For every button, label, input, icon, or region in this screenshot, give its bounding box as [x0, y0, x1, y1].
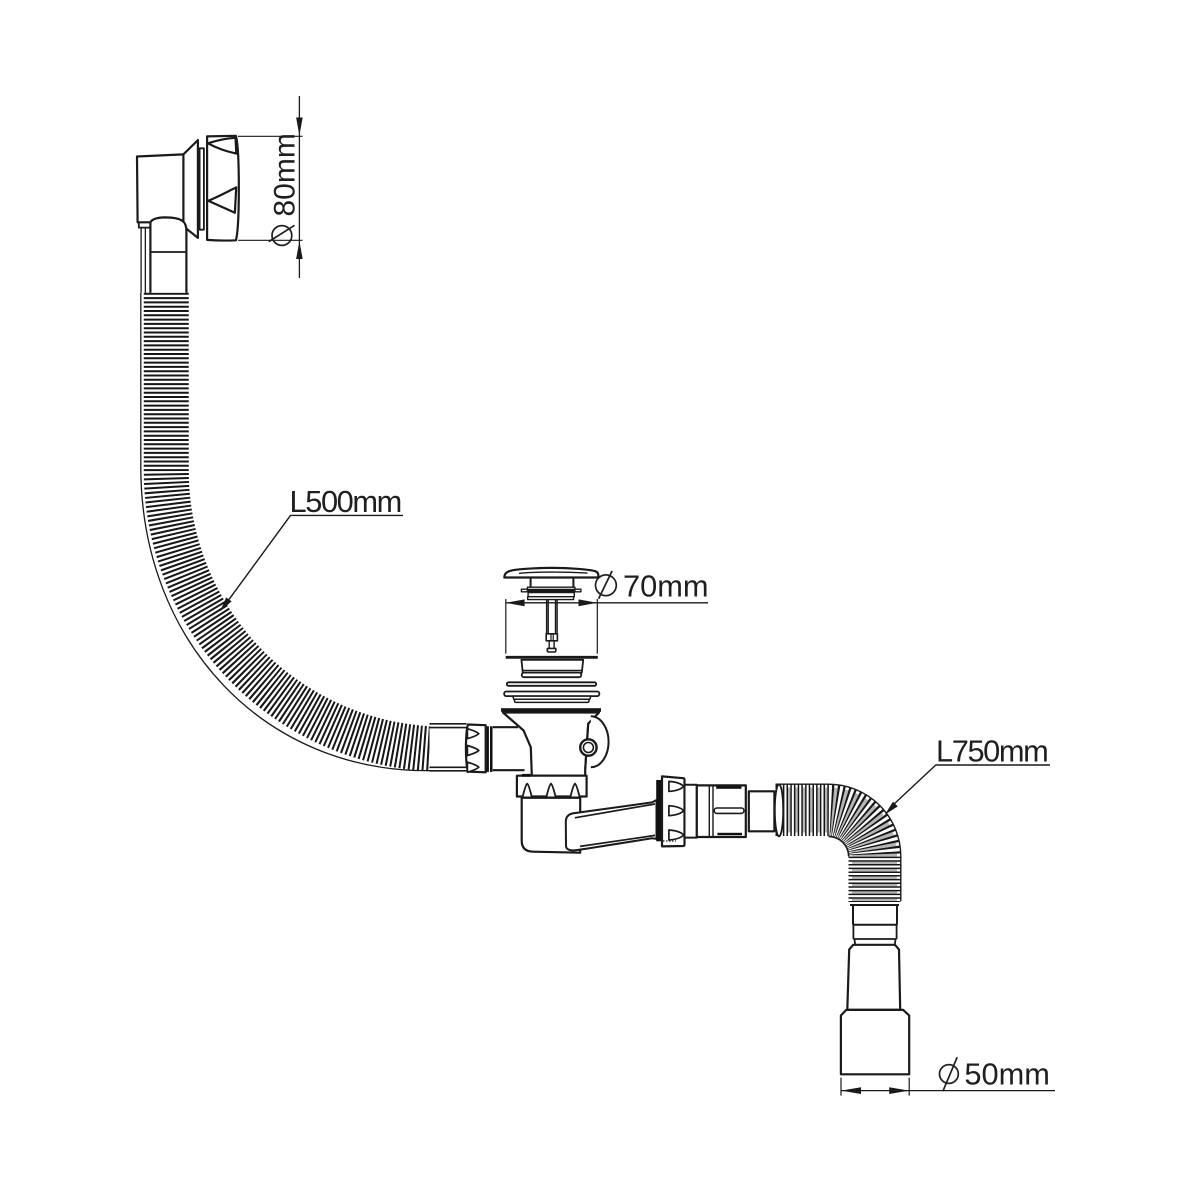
- svg-text:70mm: 70mm: [623, 568, 709, 603]
- svg-text:L750mm: L750mm: [936, 733, 1047, 768]
- svg-text:L500mm: L500mm: [290, 484, 401, 519]
- svg-text:80mm: 80mm: [269, 133, 302, 216]
- svg-text:50mm: 50mm: [964, 1057, 1050, 1092]
